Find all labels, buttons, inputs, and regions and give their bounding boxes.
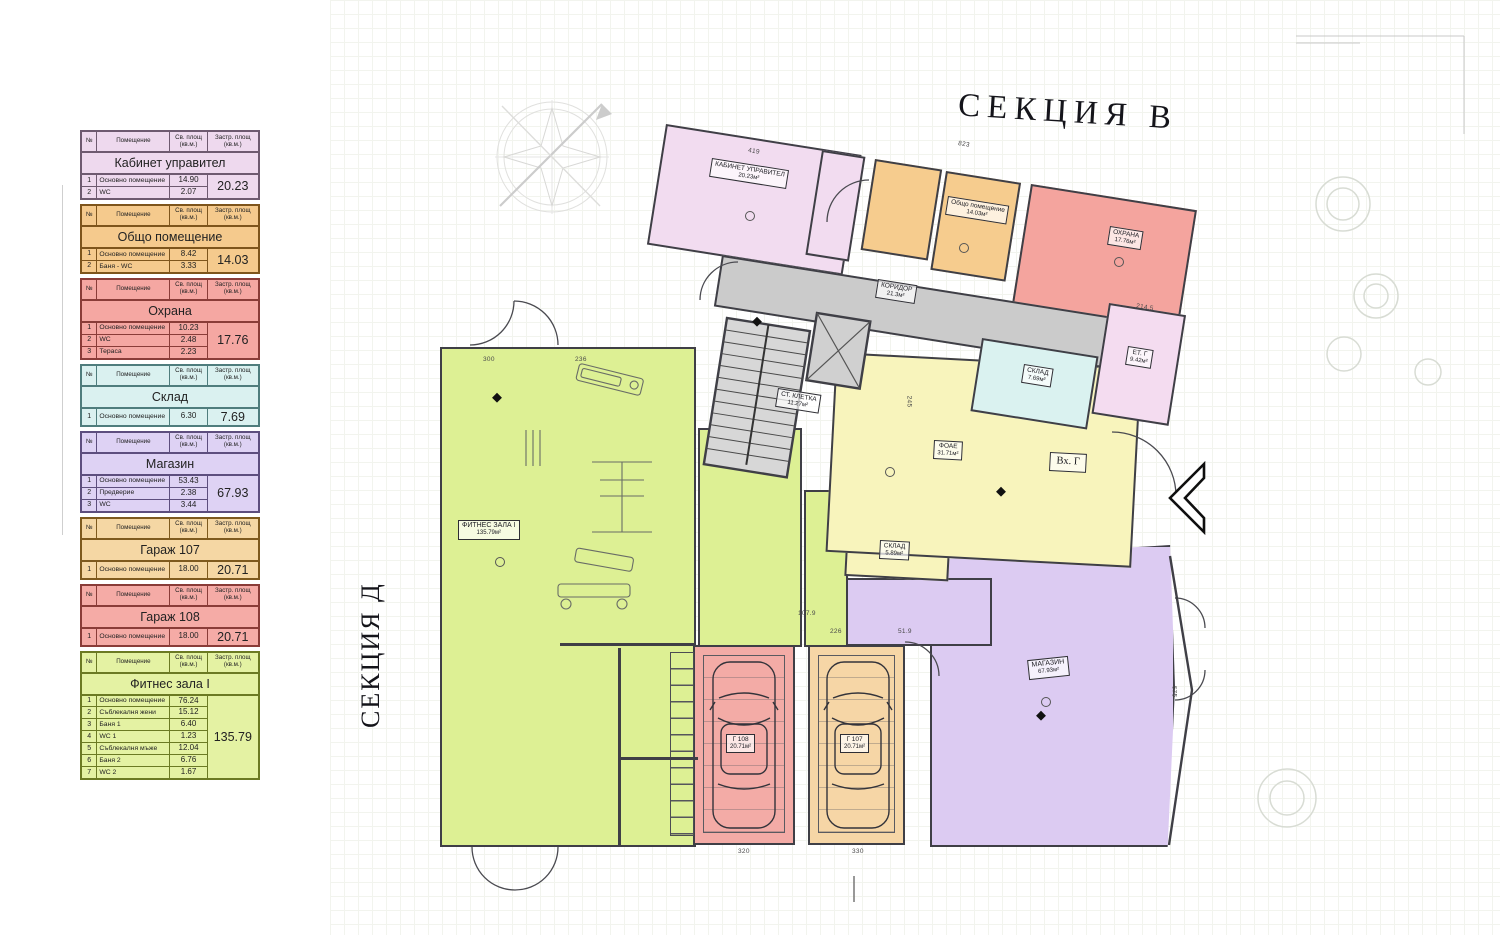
legend-section-1: №ПомещениеСв. площ (кв.м.)Застр. площ (к… [80,204,260,274]
room-fitness-hall [440,347,696,847]
legend-total: 20.23 [207,174,259,199]
legend-section-title: Склад [81,386,259,408]
tree-icon [1258,177,1441,827]
legend-section-title: Гараж 108 [81,606,259,628]
legend-total: 67.93 [207,475,259,512]
site-boundary-left [62,185,63,535]
room-label-garage-108: Г 10820.71м² [726,734,755,753]
floor-plan: СЕКЦИЯ В СЕКЦИЯ Д [330,0,1500,935]
room-area: 20.71м² [730,744,751,751]
legend: №ПомещениеСв. площ (кв.м.)Застр. площ (к… [80,130,260,784]
legend-header: №ПомещениеСв. площ (кв.м.)Застр. площ (к… [81,279,259,300]
interior-wall [560,643,696,646]
legend-section-7: №ПомещениеСв. площ (кв.м.)Застр. площ (к… [80,651,260,781]
floor-plan-page: { "titles": { "section_top": "СЕКЦИЯ В",… [0,0,1500,935]
dimension-label: 330 [852,848,864,855]
legend-section-title: Охрана [81,300,259,322]
legend-total: 135.79 [207,695,259,780]
legend-header: №ПомещениеСв. площ (кв.м.)Застр. площ (к… [81,131,259,152]
room-name: Г 107 [844,736,865,744]
compass-rose-icon [495,100,612,214]
room-name: ФИТНЕС ЗАЛА I [462,522,516,530]
legend-row: 1Основно помещение76.24135.79 [81,695,259,707]
locker-row [670,652,694,836]
legend-section-0: №ПомещениеСв. площ (кв.м.)Застр. площ (к… [80,130,260,200]
legend-section-2: №ПомещениеСв. площ (кв.м.)Застр. площ (к… [80,278,260,360]
legend-row: 1Основно помещение6.307.69 [81,408,259,426]
room-shop-vestibule [846,578,992,646]
section-d-title: СЕКЦИЯ Д [356,582,386,728]
legend-header: №ПомещениеСв. площ (кв.м.)Застр. площ (к… [81,365,259,386]
legend-header: №ПомещениеСв. площ (кв.м.)Застр. площ (к… [81,432,259,453]
room-name: Вх. Г [1056,455,1080,469]
dimension-label: 823 [958,140,971,149]
room-name: Г 108 [730,736,751,744]
legend-total: 17.76 [207,322,259,359]
dimension-label: 300 [483,356,495,363]
legend-row: 1Основно помещение10.2317.76 [81,322,259,334]
legend-header: №ПомещениеСв. площ (кв.м.)Застр. площ (к… [81,205,259,226]
room-label-foyer: ФОАЕ31.71м² [933,440,963,460]
legend-row: 1Основно помещение18.0020.71 [81,561,259,579]
interior-wall [618,757,698,760]
legend-section-6: №ПомещениеСв. площ (кв.м.)Застр. площ (к… [80,584,260,647]
legend-section-title: Общо помещение [81,226,259,248]
room-common-a [861,159,943,261]
legend-row: 1Основно помещение18.0020.71 [81,628,259,646]
dimension-label: 245 [905,396,912,408]
legend-section-4: №ПомещениеСв. площ (кв.м.)Застр. площ (к… [80,431,260,513]
dimension-label: 226 [830,628,842,635]
room-area: 5.89м² [883,550,905,558]
room-area: 135.79м² [462,530,516,537]
dimension-label: 320 [738,848,750,855]
dimension-label: 51.9 [898,628,912,635]
legend-row: 1Основно помещение14.9020.23 [81,174,259,186]
interior-wall [618,648,621,845]
dimension-label: 675 [1170,686,1177,698]
room-label-fitness: ФИТНЕС ЗАЛА I135.79м² [458,520,520,540]
room-label-garage-107: Г 10720.71м² [840,734,869,753]
room-label-et: ЕТ. Г9.42м² [1125,346,1153,369]
room-label-entrance: Вх. Г [1049,452,1087,473]
room-label-storage-small: СКЛАД5.89м² [879,540,910,561]
entrance-arrow-icon [1170,464,1204,532]
legend-row: 1Основно помещение8.4214.03 [81,248,259,260]
legend-section-3: №ПомещениеСв. площ (кв.м.)Застр. площ (к… [80,364,260,427]
site-boundary [1296,36,1464,134]
legend-total: 7.69 [207,408,259,426]
legend-section-5: №ПомещениеСв. площ (кв.м.)Застр. площ (к… [80,517,260,580]
dimension-label: 107.9 [798,610,816,617]
legend-section-title: Кабинет управител [81,152,259,174]
room-area: 31.71м² [937,450,958,458]
room-area: 20.71м² [844,744,865,751]
legend-section-title: Фитнес зала I [81,673,259,695]
legend-header: №ПомещениеСв. площ (кв.м.)Застр. площ (к… [81,585,259,606]
dimension-label: 236 [575,356,587,363]
legend-row: 1Основно помещение53.4367.93 [81,475,259,487]
section-b-title: СЕКЦИЯ В [957,87,1179,137]
legend-total: 20.71 [207,628,259,646]
legend-total: 20.71 [207,561,259,579]
room-label-stairs: СТ. КЛЕТКА11.27м² [775,388,821,414]
legend-section-title: Магазин [81,453,259,475]
room-common-b [930,171,1021,282]
room-fitness-annex [698,428,802,647]
legend-header: №ПомещениеСв. площ (кв.м.)Застр. площ (к… [81,652,259,673]
legend-total: 14.03 [207,248,259,273]
legend-header: №ПомещениеСв. площ (кв.м.)Застр. площ (к… [81,518,259,539]
legend-section-title: Гараж 107 [81,539,259,561]
